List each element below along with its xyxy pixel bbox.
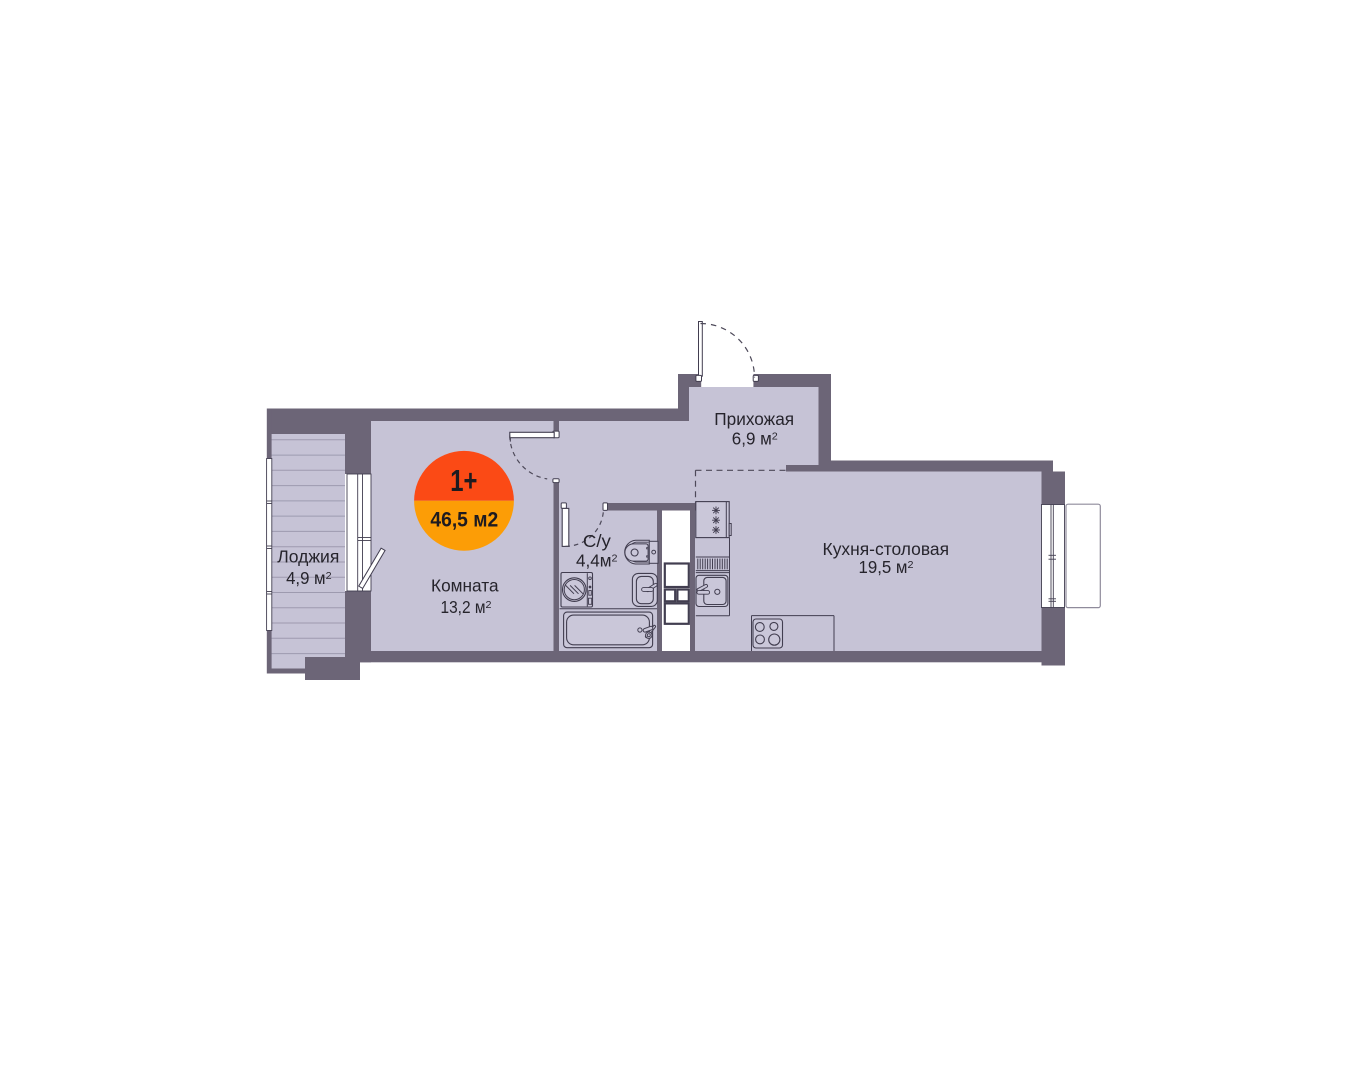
svg-text:2: 2 — [772, 430, 778, 442]
svg-text:2: 2 — [326, 570, 332, 582]
svg-text:Прихожая: Прихожая — [714, 409, 794, 429]
svg-text:46,5 м2: 46,5 м2 — [430, 509, 498, 532]
svg-text:4,9 м: 4,9 м — [286, 568, 326, 588]
svg-text:13,2 м: 13,2 м — [441, 597, 486, 617]
svg-text:2: 2 — [486, 599, 492, 611]
svg-text:6,9 м: 6,9 м — [732, 428, 772, 448]
svg-text:Комната: Комната — [431, 576, 499, 596]
svg-text:2: 2 — [908, 559, 914, 571]
svg-text:4,4м: 4,4м — [576, 550, 612, 570]
svg-text:Кухня-столовая: Кухня-столовая — [823, 539, 950, 559]
svg-text:1+: 1+ — [450, 463, 477, 498]
svg-text:2: 2 — [612, 552, 618, 564]
svg-text:С/у: С/у — [583, 531, 611, 551]
svg-text:19,5 м: 19,5 м — [859, 557, 908, 577]
svg-text:Лоджия: Лоджия — [277, 547, 339, 567]
